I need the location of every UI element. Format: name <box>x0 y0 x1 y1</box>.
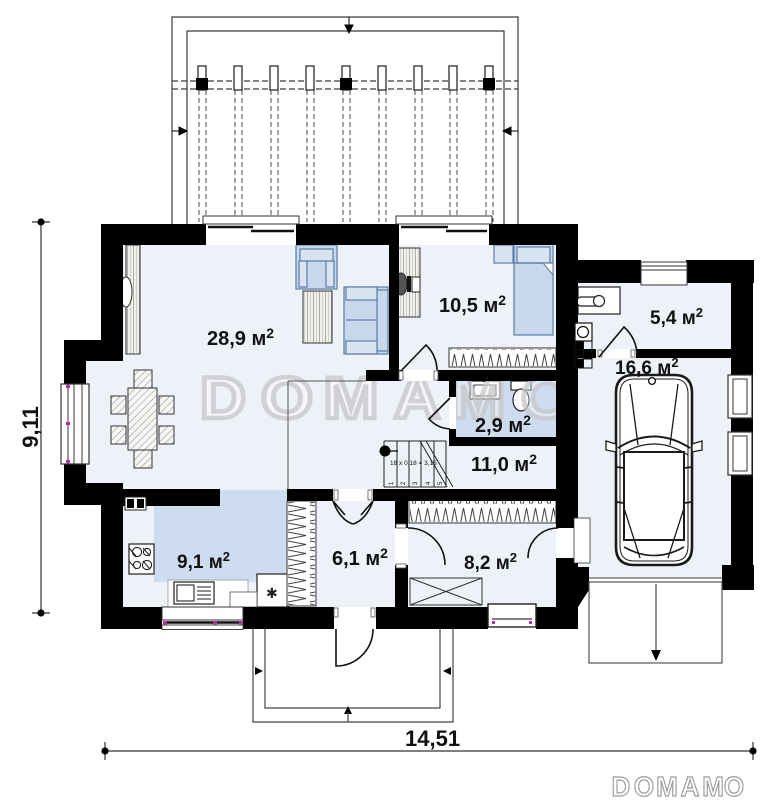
svg-text:6,1 м2: 6,1 м2 <box>332 545 388 570</box>
svg-text:9,11: 9,11 <box>18 406 43 448</box>
svg-text:2,9 м2: 2,9 м2 <box>475 412 531 437</box>
svg-text:O: O <box>724 771 744 800</box>
svg-text:O: O <box>634 771 654 800</box>
svg-text:9,1 м2: 9,1 м2 <box>177 549 230 573</box>
svg-text:✱: ✱ <box>266 585 278 601</box>
svg-text:18 x 0,18 = 3,15: 18 x 0,18 = 3,15 <box>390 460 437 467</box>
svg-text:D: D <box>200 366 246 431</box>
svg-text:O: O <box>261 366 313 431</box>
svg-text:16,6 м2: 16,6 м2 <box>615 355 679 379</box>
svg-text:A: A <box>681 771 700 800</box>
svg-text:D: D <box>612 771 631 800</box>
svg-text:11,0 м2: 11,0 м2 <box>471 451 537 476</box>
svg-text:14,51: 14,51 <box>405 726 460 751</box>
svg-text:5,4 м2: 5,4 м2 <box>650 305 703 329</box>
svg-text:28,9 м2: 28,9 м2 <box>207 325 274 350</box>
svg-text:M: M <box>656 771 678 800</box>
svg-text:8,2 м2: 8,2 м2 <box>464 550 517 574</box>
svg-text:M: M <box>702 771 724 800</box>
svg-text:10,5 м2: 10,5 м2 <box>439 292 506 317</box>
